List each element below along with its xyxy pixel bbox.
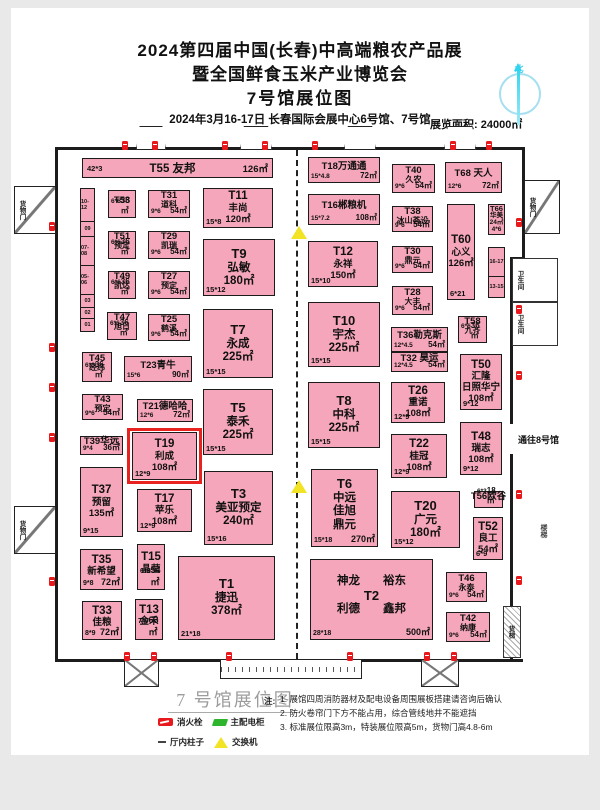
booth-line: 108㎡ [152,463,177,474]
booth-bottom-row: 6*636㎡ [111,196,133,216]
booth-line: 108㎡ [152,517,177,528]
booth-bottom-row: 6*954㎡ [140,565,162,588]
booth-bottom-row: 6*636㎡ [111,237,133,257]
booth-dims: 9*4 [83,445,93,452]
cargo-door-label: 货物门 [16,200,26,220]
booth-bottom-row: 6*636㎡ [461,321,484,341]
booth-dims: 12*9 [394,467,409,476]
legend-item: 厅内柱子 [158,736,204,748]
booth-dims: 6*9 [476,549,487,558]
booth-T10: T10宇杰225㎡15*15 [308,302,380,367]
booth-dims: 12*9 [135,469,150,478]
booth-dims: 9*6 [151,289,161,296]
booth-T30: T30鼎元9*654㎡ [392,246,433,273]
booth-T32: T32 昊运12*4.554㎡ [391,352,448,372]
fire-hydrant-icon [451,652,457,661]
booth-bottom-row: 9*436㎡ [83,442,120,453]
booth-line: 225㎡ [223,429,254,442]
booth-line: T7 [230,323,245,338]
booth-dims: 9*6 [395,222,405,229]
cargo-door-label: 货物门 [16,520,26,540]
booth-bottom-row: 9*654㎡ [395,260,430,271]
booth-line: 捷迅 [215,592,238,605]
fire-hydrant-icon [312,141,318,150]
booth-dims: 15*7.2 [311,215,330,222]
legend-item: 消火栓 [158,716,203,728]
booth-T6: T6中远佳旭鼎元15*18270㎡ [311,469,378,547]
booth-line: 永祥 [333,260,352,271]
booth-line: T5 [230,401,245,416]
legend-item: 主配电柜 [213,716,265,728]
booth-T38: T38冰山荟设9*654㎡ [392,206,433,232]
booth-area: 18㎡ [487,486,500,506]
booth-T40: T40久农9*654㎡ [392,164,435,193]
booth-line: 中远 [333,492,356,505]
booth-dims: 15*15 [206,444,226,453]
booth-T58: T58九齐6*636㎡ [458,316,487,343]
booth-dims: 15*10 [311,276,331,285]
booth-T48: T48瑞志108㎡9*12 [460,422,502,475]
booth-T25: T25鹤溪9*654㎡ [148,314,190,341]
booth-T42: T42纳康9*654㎡ [446,612,490,642]
booth-line: 美亚预定 [216,502,262,515]
booth-T33: T33佳粮8*972㎡ [82,601,122,640]
booth-T17: T17苹乐108㎡12*9 [137,489,192,532]
booth-T50: T50汇隆日照华宁108㎡9*12 [460,354,502,410]
booth-area: 54㎡ [170,328,187,339]
booth-bottom-row: 9*654㎡ [151,286,187,297]
booth-bottom-row: 15*690㎡ [127,369,189,380]
fire-hydrant-icon [486,141,492,150]
booth-line: T19 [155,438,175,451]
fire-hydrant-icon [222,141,228,150]
booth-line: T11 [228,190,247,203]
fire-hydrant-icon [516,576,522,585]
booth-text: T60心义126㎡ [448,205,474,299]
booth-area: 54㎡ [103,407,120,418]
booth-text: T1捷迅378㎡ [179,557,274,639]
booth-dims: 9*12 [463,464,478,473]
booth-bottom-row: 12*672㎡ [140,409,190,420]
strip-booth-07-08: 07-08 [80,236,95,266]
booth-dims: 9*6 [151,249,161,256]
booth-area: 54㎡ [428,359,445,370]
booth-dims: 9*15 [83,526,98,535]
booth-T37: T37预留135㎡9*15 [80,467,123,537]
freight-elevator: 货梯 [503,606,521,658]
booth-line: 180㎡ [224,275,255,288]
booth-area: 54㎡ [428,339,445,350]
legend-label: 主配电柜 [231,716,265,728]
note-item: 1. 展馆四周消防器材及配电设备周围展板搭建请咨询后确认 [280,694,564,704]
booth-line: 180㎡ [410,527,441,540]
booth-dims: 6*9 [140,568,151,575]
fire-hydrant-icon [49,577,55,586]
booth-line: 心义 [451,248,470,259]
booth-T46: T46永泰9*654㎡ [446,572,487,602]
power-cabinet-icon [211,719,227,726]
cargo-door-label: 货物门 [526,197,536,217]
fire-hydrant-icon [49,343,55,352]
legend-item: 交换机 [214,736,258,748]
booth-area: 36㎡ [103,442,120,453]
booth-T53: T536*636㎡ [108,190,136,218]
gate-to-hall8-label: 通往8号馆 [518,433,559,446]
fire-hydrant-icon [226,652,232,661]
booth-line: 利成 [155,452,174,463]
booth-dims: 15*8 [206,217,221,226]
floor-plan-poster: 2024第四届中国(长春)中高端粮农产品展 暨全国鲜食玉米产业博览会 7号馆展位… [0,0,600,810]
booth-line: T10 [333,314,355,329]
booth-area: 72㎡ [360,170,377,181]
booth-line: 4*6 [492,227,502,234]
booth-dims: 15*15 [311,437,331,446]
booth-T43: T43预定9*654㎡ [82,394,123,420]
booth-dims: 12*9 [140,521,155,530]
booth-T68: T68 天人12*672㎡ [445,162,502,193]
booth-dims: 9*6 [85,410,95,417]
strip-booth-16-17: 16-17 [488,247,505,277]
booth-T66: T66华美24㎡4*6 [488,204,505,235]
booth-bottom-row: 6*636㎡ [110,318,134,338]
booth-area: 36㎡ [95,360,109,380]
booth-T2: 神龙 裕东T2利德 鑫邦28*18500㎡ [310,559,433,640]
booth-T21: T21德哈哈12*672㎡ [137,399,193,422]
booth-line: T16郴粮机 [322,201,367,211]
top-door-canopy [444,126,476,150]
booth-dims: 6*21 [450,289,465,298]
booth-area: 54㎡ [470,629,487,640]
top-door-canopy [136,126,166,150]
booth-bottom-row: 15*18270㎡ [314,532,375,545]
switch-icon [291,226,307,239]
booth-line: 135㎡ [89,509,114,520]
booth-bottom-row: 9*872㎡ [83,575,120,588]
column-icon [158,741,166,743]
booth-dims: 9*6 [395,183,405,190]
rolling-door-section [220,659,362,679]
booth-area: 36㎡ [121,237,133,257]
booth-dims: 6*6 [111,239,121,246]
booth-T3: T3美亚预定240㎡15*16 [204,471,273,545]
fire-hydrant-icon [49,222,55,231]
booth-T9: T9弘敏180㎡15*12 [203,239,275,296]
booth-line: T12 [333,246,353,259]
fire-hydrant-icon [152,141,158,150]
booth-T26: T26重诺108㎡12*9 [391,382,445,423]
booth-T60: T60心义126㎡6*21 [447,204,475,300]
fire-hydrant-icon [516,490,522,499]
booth-line: 240㎡ [223,515,254,528]
booth-bottom-row: 9*654㎡ [449,629,487,640]
booth-T49: T49凯达6*636㎡ [108,271,136,299]
booth-line: T1 [219,577,234,592]
booth-line: 225㎡ [223,351,254,364]
fire-hydrant-icon [122,141,128,150]
fire-hydrant-icon [516,218,522,227]
booth-T29: T29凯瑞9*654㎡ [148,231,190,259]
fire-hydrant-icon [124,652,130,661]
booth-bottom-row: 6*636㎡ [111,277,133,297]
booth-area: 36㎡ [120,318,134,338]
booth-line: T6 [337,477,352,492]
booth-area: 54㎡ [151,565,162,588]
booth-T13: T13金禾7*963㎡ [135,599,163,640]
booth-area: 54㎡ [415,180,432,191]
booth-line: 广元 [414,514,437,527]
booth-dims: 15*6 [127,372,140,379]
booth-area: 72㎡ [100,625,119,638]
booth-dims: 7*9 [138,618,149,625]
booth-line: T68 天人 [454,169,492,179]
booth-T5: T5泰禾225㎡15*15 [203,389,273,455]
booth-T52: T52良工54㎡6*9 [473,517,503,560]
booth-area: 36㎡ [121,277,133,297]
booth-dims: 12*6 [140,412,153,419]
cargo-door: 货物门 [14,506,56,554]
booth-title: T55 友邦 [102,160,242,176]
booth-line: 弘敏 [228,262,251,275]
booth-line: T9 [231,247,246,262]
booth-bottom-row: 6*636㎡ [85,360,109,380]
booth-line: 利德 鑫邦 [337,603,406,616]
side-room: 卫生间 [512,258,558,302]
booth-dims: 28*18 [313,630,331,637]
booth-bottom-row: 28*18500㎡ [313,625,430,638]
strip-booth-05-06: 05-06 [80,265,95,295]
booth-line: 预留 [92,498,111,509]
booth-bottom-row: 15*4.872㎡ [311,170,377,181]
booth-line: T37 [92,484,112,497]
booth-dims: 15*4.8 [311,173,330,180]
booth-line: 永成 [227,338,250,351]
legend-label: 消火栓 [177,716,203,728]
notes-block: 注: 1. 展馆四周消防器材及配电设备周围展板搭建请咨询后确认2. 防火卷帘门下… [264,694,564,737]
booth-line: 泰禾 [227,416,250,429]
booth-line: T3 [231,487,246,502]
strip-booth-13-15: 13-15 [488,276,505,298]
booth-bottom-row: 9*654㎡ [151,246,187,257]
booth-area: 500㎡ [406,625,430,638]
booth-dims: 9*6 [151,208,161,215]
booth-area: 126㎡ [243,161,268,175]
booth-T27: T27预定9*654㎡ [148,271,190,299]
booth-dims: 9*12 [463,399,478,408]
booth-line: 佳旭 [333,505,356,518]
booth-area: 72㎡ [482,180,499,191]
booth-line: 鼎元 [333,519,356,532]
side-room-label: 卫生间 [514,270,524,290]
booth-dims: 9*6 [449,592,459,599]
fire-hydrant-icon [49,383,55,392]
booth-bottom-row: 15*7.2108㎡ [311,212,377,223]
fire-hydrant-icon [516,371,522,380]
strip-booth-03: 03 [80,294,95,308]
booth-text: T66华美24㎡4*6 [489,205,504,234]
booth-T39: T39华远9*436㎡ [80,436,123,455]
booth-dims: 12*9 [394,412,409,421]
booth-dims: 6*6 [461,323,471,330]
booth-dims: 15*12 [206,285,226,294]
booth-T23: T23青牛15*690㎡ [124,356,192,382]
booth-line: 桂冠 [409,452,428,463]
freight-elevator-label: 货梯 [505,626,515,639]
booth-T31: T31道科9*654㎡ [148,190,190,218]
booth-dims: 21*18 [181,629,201,638]
booth-T7: T7永成225㎡15*15 [203,309,273,378]
booth-area: 36㎡ [471,321,484,341]
booth-bottom-row: 9*654㎡ [395,180,432,191]
booth-dims: 15*18 [314,537,332,544]
strip-booth-09: 09 [80,221,95,237]
booth-bottom-row: 9*654㎡ [449,589,484,600]
booth-bottom-row: 12*672㎡ [448,180,499,191]
booth-bottom-row: 8*972㎡ [85,625,119,638]
booth-bottom-row: 9*654㎡ [151,205,187,216]
booth-line: 丰尚 [228,204,247,215]
booth-area: 54㎡ [413,260,430,271]
fire-hydrant-icon [262,141,268,150]
booth-area: 54㎡ [413,219,430,230]
bottom-door-vestibule [124,659,159,687]
booth-line: 神龙 裕东 [337,575,406,588]
booth-line: 378㎡ [211,605,242,618]
note-item: 3. 标准展位限高3m，特装展位限高5m，货物门高4.8-6m [280,722,564,732]
top-door-canopy [344,126,376,150]
booth-line: 108㎡ [406,463,431,474]
booth-T51: T51预定6*636㎡ [108,231,136,259]
booth-T20: T20广元180㎡15*12 [391,491,460,548]
booth-bottom-row: 9*654㎡ [85,407,120,418]
fire-hydrant-icon [450,141,456,150]
booth-line: 225㎡ [329,422,360,435]
booth-dims: 42*3 [87,164,102,173]
booth-T11: T11丰尚120㎡15*8 [203,188,273,228]
booth-area: 54㎡ [170,286,187,297]
fire-hydrant-icon [49,433,55,442]
booth-T15: T15晶莹6*954㎡ [137,544,165,590]
booth-T36: T36勒克斯12*4.554㎡ [391,327,448,352]
booth-dims: 12*6 [448,183,461,190]
booth-line: T8 [336,394,351,409]
booth-dims: 6*6 [85,362,95,369]
booth-T28: T28大丰9*654㎡ [392,286,433,315]
fire-hydrant-icon [516,305,522,314]
bottom-door-vestibule [421,659,459,687]
fire-hydrant-icon [158,718,173,726]
booth-area: 108㎡ [356,212,377,223]
booth-T35: T35新希望9*872㎡ [80,549,123,590]
booth-T22: T22桂冠108㎡12*9 [391,434,447,478]
booth-dims: 9*6 [151,331,161,338]
booth-line: 宇杰 [333,329,356,342]
fire-hydrant-icon [424,652,430,661]
booth-bottom-row: 7*963㎡ [138,615,160,638]
stairs-label: 楼梯 [538,524,548,538]
booth-area: 36㎡ [121,196,133,216]
booth-T12: T12永祥150㎡15*10 [308,241,378,287]
booth-area: 54㎡ [467,589,484,600]
side-room-label: 卫生间 [514,314,524,334]
booth-line: 225㎡ [329,342,360,355]
booth-line: 150㎡ [330,271,355,282]
booth-line: T60 [451,234,471,247]
notes-label: 注: [264,695,275,707]
booth-area: 72㎡ [101,575,120,588]
booth-dims: 9*6 [449,632,459,639]
booth-line: T22 [409,438,429,451]
booth-area: 90㎡ [172,369,189,380]
legend-label: 交换机 [232,736,258,748]
booth-T45: T45经纬6*636㎡ [82,352,112,382]
booth-dims: 12*4.5 [394,362,413,369]
legend-label: 厅内柱子 [170,736,204,748]
booth-area: 54㎡ [413,302,430,313]
gate-opening [509,424,514,454]
booth-dims: 15*16 [207,534,227,543]
booth-line: 中科 [333,409,356,422]
booth-line: T20 [414,499,436,514]
booth-dims: 15*15 [311,356,331,365]
booth-area: 63㎡ [149,615,160,638]
booth-bottom-row: 9*654㎡ [395,302,430,313]
booth-T8: T8中科225㎡15*15 [308,382,380,448]
booth-line: T15 [141,551,161,564]
strip-booth-10-12: 10-12 [80,188,95,222]
fire-hydrant-icon [151,652,157,661]
booth-T47: T47旭日6*636㎡ [107,312,137,340]
booth-dims: 9*8 [83,580,94,587]
booth-T1: T1捷迅378㎡21*18 [178,556,275,640]
booth-dims: 15*12 [394,537,414,546]
booth-line: 126㎡ [448,259,473,270]
booth-bottom-row: 12*4.554㎡ [394,359,445,370]
strip-booth-01: 01 [80,318,95,332]
cargo-door: 货物门 [524,180,560,234]
booth-dims: 8*9 [85,630,96,637]
booth-bottom-row: 6*318㎡ [477,486,500,506]
booth-line: T2 [364,589,379,604]
switch-icon [214,737,228,748]
booth-T56: T56欧谷6*318㎡ [474,491,503,508]
booth-dims: 6*6 [110,320,120,327]
booth-T55: 42*3T55 友邦126㎡ [82,158,273,178]
booth-bottom-row: 9*654㎡ [395,219,430,230]
booth-dims: 9*6 [395,263,405,270]
booth-area: 54㎡ [170,246,187,257]
booth-dims: 6*6 [111,279,121,286]
fire-hydrant-icon [347,652,353,661]
booth-dims: 6*6 [111,198,121,205]
booth-bottom-row: 9*654㎡ [151,328,187,339]
booth-bottom-row: 12*4.554㎡ [394,339,445,350]
booth-area: 72㎡ [173,409,190,420]
booth-line: 120㎡ [225,215,250,226]
booth-area: 270㎡ [351,532,375,545]
booth-T18: T18万通通15*4.872㎡ [308,157,380,183]
booth-T16: T16郴粮机15*7.2108㎡ [308,194,380,225]
booth-dims: 12*4.5 [394,342,413,349]
booth-dims: 15*15 [206,367,226,376]
booth-dims: 9*6 [395,305,405,312]
switch-icon [291,480,307,493]
booth-dims: 6*3 [477,488,487,495]
booth-T19: T19利成108㎡12*9 [132,432,197,480]
booth-area: 54㎡ [170,205,187,216]
note-item: 2. 防火卷帘门下方不能占用，综合管线地井不能遮挡 [280,708,564,718]
